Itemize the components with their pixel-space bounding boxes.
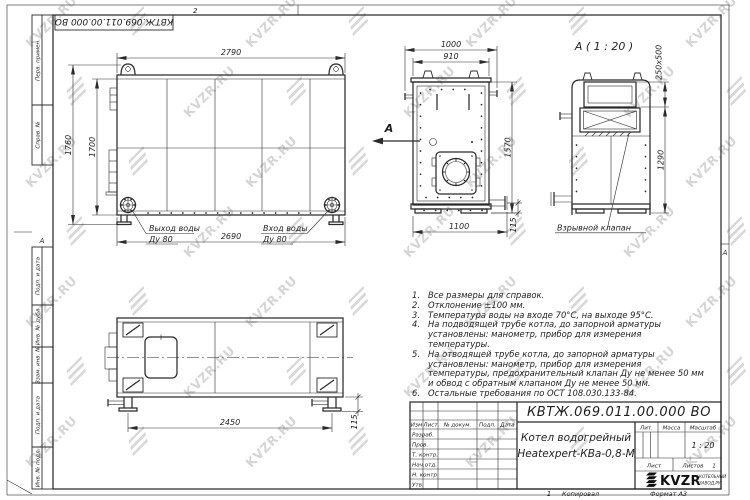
kvzr-logo-icon xyxy=(646,473,657,487)
note-item: 4. На подводящей трубе котла, до запорно… xyxy=(412,320,704,349)
inlet-label-line2: Ду 80 xyxy=(262,235,287,244)
lit-label: Лит. xyxy=(639,426,653,432)
kvzr-logo-text: KVZR xyxy=(660,474,701,489)
logo-subtext-1: КОТЕЛЬНЫЙ xyxy=(699,474,727,479)
margin-field-label: Подп. и дата xyxy=(36,256,42,295)
note-number: 6. xyxy=(412,389,428,399)
view-plan: 2450 115 xyxy=(105,318,363,432)
mass-label: Масса xyxy=(663,426,681,432)
inlet-label-line1: Вход воды xyxy=(263,224,308,233)
col-podp: Подп. xyxy=(479,423,496,429)
view-arrow-label: А xyxy=(384,122,394,135)
sig-row-prov: Пров. xyxy=(412,443,428,449)
outlet-label-line1: Выход воды xyxy=(149,224,200,233)
dim-front-height: 1570 xyxy=(504,137,513,157)
burner-mount xyxy=(432,152,480,194)
col-data: Дата xyxy=(499,423,515,429)
lifting-lug xyxy=(329,64,343,75)
scale-value: 1 : 20 xyxy=(691,441,714,450)
dim-plan-pipe-height: 115 xyxy=(350,414,359,429)
doc-number: КВТЖ.069.011.00.000 ВО xyxy=(527,405,711,420)
explosion-valve-label: Взрывной клапан xyxy=(557,224,631,233)
rear-view-title: А ( 1 : 20 ) xyxy=(574,40,633,53)
logo-subtext-2: ЗАВОД.РУ xyxy=(699,481,721,486)
product-name-line2: Heatexpert-КВа-0,8-М xyxy=(517,448,634,460)
view-rear-a: А ( 1 : 20 ) xyxy=(551,40,669,233)
format-label: Формат А3 xyxy=(650,490,687,498)
col-list: Лист xyxy=(422,423,438,429)
boiler-body-side xyxy=(117,75,345,215)
dim-plan-leg-span: 2450 xyxy=(220,418,240,427)
note-number: 5. xyxy=(412,350,428,389)
margin-field-labels: Перв. примен. Справ. № Подп. и дата Инв.… xyxy=(36,39,42,488)
copied-label: Копировал xyxy=(562,490,599,498)
zone-letter-left: А xyxy=(39,237,45,245)
margin-field-label: Подп. и дата xyxy=(36,395,42,434)
zone-letter-right: А xyxy=(722,249,728,257)
dim-front-base-width: 1100 xyxy=(449,222,469,231)
drawing-sheet: KVZR.RUKVZR.RUKVZR.RUKVZR.RUKVZR.RUKVZR.… xyxy=(0,0,750,500)
zone-number-bottom: 1 xyxy=(547,490,551,498)
technical-notes: 1. Все размеры для справок. 2. Отклонени… xyxy=(412,291,704,399)
sig-row-razrab: Разраб. xyxy=(412,433,434,439)
note-text: На подводящей трубе котла, до запорной а… xyxy=(428,320,704,349)
drawing-svg: Перв. примен. Справ. № Подп. и дата Инв.… xyxy=(0,0,750,500)
sig-row-nkontr: Н. контр. xyxy=(412,473,439,479)
lifting-lug xyxy=(121,64,135,75)
note-text: Остальные требования по ОСТ 108.030.133-… xyxy=(428,389,704,399)
view-side-elevation: 2790 1760 1700 2690 Выход воды Ду 80 Вхо… xyxy=(64,48,345,246)
sight-glass xyxy=(430,139,437,146)
dim-front-overall-width: 1000 xyxy=(441,40,461,49)
note-text: На отводящей трубе котла, до запорной ар… xyxy=(428,350,704,389)
col-dokum: № докум. xyxy=(443,423,472,429)
dim-side-height-inner: 1700 xyxy=(88,137,97,157)
sig-row-nachotd: Нач.отд. xyxy=(412,463,437,469)
sheets-value: 1 xyxy=(712,464,716,470)
boiler-body-front xyxy=(413,82,489,205)
dim-rear-height: 1290 xyxy=(657,150,666,170)
view-front-end: 1000 910 1570 1100 115 xyxy=(405,40,522,237)
sig-row-utv: Утв. xyxy=(412,483,424,489)
note-item: 6. Остальные требования по ОСТ 108.030.1… xyxy=(412,389,704,399)
arrow-head xyxy=(372,138,383,145)
outlet-label-line2: Ду 80 xyxy=(148,235,173,244)
dim-side-length-bottom: 2690 xyxy=(221,232,241,241)
margin-field-label: Справ. № xyxy=(36,121,42,148)
sheet-label: Лист xyxy=(646,464,662,470)
margin-field-label: Перв. примен. xyxy=(36,39,42,81)
note-item: 5. На отводящей трубе котла, до запорной… xyxy=(412,350,704,389)
sheets-label: Листов xyxy=(682,464,704,470)
product-name-line1: Котел водогрейный xyxy=(521,432,631,444)
zone-number-top: 2 xyxy=(193,7,198,15)
scale-label: Масштаб xyxy=(690,426,717,432)
explosion-valve xyxy=(580,108,640,136)
margin-field-label: Инв. № подл. xyxy=(36,448,42,487)
sig-row-tkontr: Т. контр. xyxy=(412,453,438,459)
dim-side-length-top: 2790 xyxy=(221,48,241,57)
dim-rear-flue-size: 250х500 xyxy=(655,45,664,80)
side-ladder xyxy=(109,150,117,192)
dim-front-body-width: 910 xyxy=(443,52,458,61)
title-block: КВТЖ.069.011.00.000 ВО Изм Лист № докум.… xyxy=(410,402,727,489)
top-stamp-text: КВТЖ.069.011.00.000 ВО xyxy=(55,16,173,26)
col-izm: Изм xyxy=(411,423,423,429)
dim-front-pipe-height: 115 xyxy=(509,217,518,232)
margin-field-label: Взам. инв. № xyxy=(36,346,42,384)
note-number: 4. xyxy=(412,320,428,349)
margin-field-label: Инв. № дубл. xyxy=(36,307,42,345)
dim-side-height-outer: 1760 xyxy=(64,135,73,155)
